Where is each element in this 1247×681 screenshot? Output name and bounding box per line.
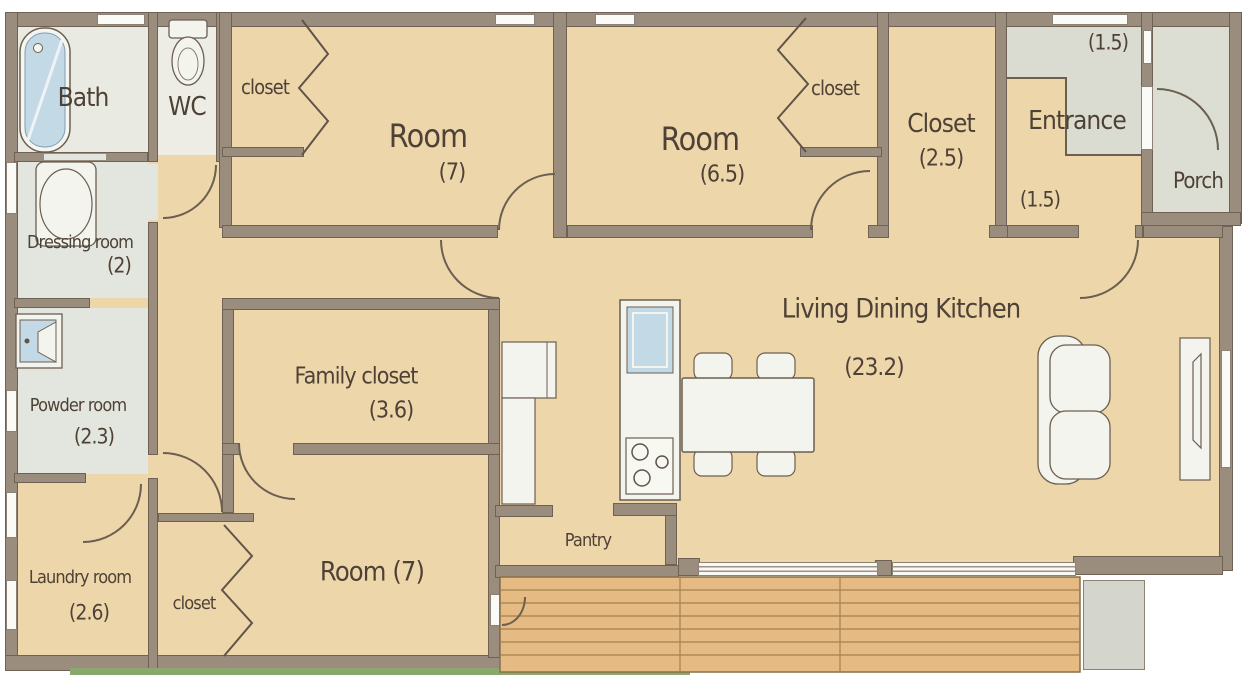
kitchen-counter xyxy=(620,300,680,500)
room-label-powder: Powder room xyxy=(30,397,126,415)
room-label-ldk: Living Dining Kitchen xyxy=(782,296,1021,323)
room-size-dressing: (2) xyxy=(107,256,131,277)
dining-set xyxy=(682,353,814,476)
room-size-family-closet: (3.6) xyxy=(369,400,414,423)
room-label-closet-25: Closet xyxy=(907,111,975,137)
room-label-room-bottom: Room (7) xyxy=(320,559,424,586)
powder-sink xyxy=(16,314,62,368)
floor-plan-canvas: Bath WC closet Room (7) Room (6.5) close… xyxy=(0,0,1247,681)
room-label-dressing: Dressing room xyxy=(27,234,133,252)
room-label-bath: Bath xyxy=(58,85,109,111)
folding-door-zigzags xyxy=(222,18,808,656)
room-label-wc: WC xyxy=(168,94,206,120)
room-label-room-top-right: Room xyxy=(661,123,739,155)
room-label-closet-top-left: closet xyxy=(241,77,289,97)
room-size-entrance-upper: (1.5) xyxy=(1088,33,1128,54)
room-label-porch: Porch xyxy=(1173,171,1223,193)
toilet xyxy=(169,20,207,85)
room-size-entrance-lower: (1.5) xyxy=(1020,190,1060,211)
room-size-room-top-left: (7) xyxy=(439,162,466,185)
room-label-closet-top-right: closet xyxy=(811,78,859,98)
sofa xyxy=(1038,336,1110,484)
room-size-laundry: (2.6) xyxy=(69,603,109,624)
wood-deck xyxy=(500,577,1080,672)
room-label-family-closet: Family closet xyxy=(295,366,418,389)
room-label-closet-bottom: closet xyxy=(173,595,216,613)
hall-cabinet xyxy=(502,342,556,504)
tv-board xyxy=(1180,338,1210,480)
room-label-pantry: Pantry xyxy=(565,532,611,550)
room-size-room-top-right: (6.5) xyxy=(700,164,745,187)
room-size-powder: (2.3) xyxy=(74,427,114,448)
room-label-laundry: Laundry room xyxy=(29,569,131,587)
room-size-ldk: (23.2) xyxy=(844,355,904,379)
room-label-entrance: Entrance xyxy=(1028,108,1126,134)
room-label-room-top-left: Room xyxy=(389,120,467,152)
room-size-closet-25: (2.5) xyxy=(919,148,964,171)
